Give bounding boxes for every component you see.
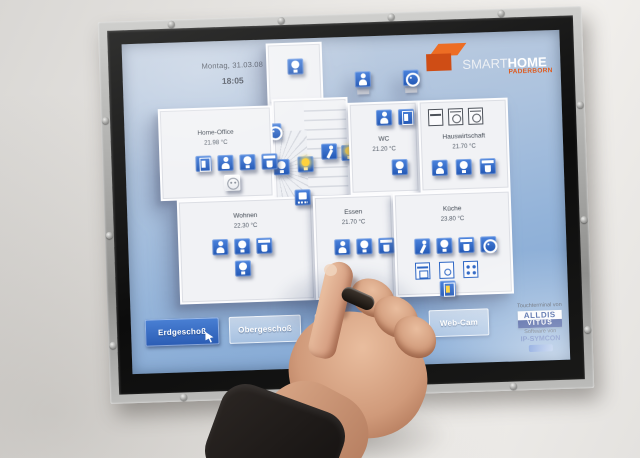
room-essen: Essen 21.70 °C [313,193,396,300]
room-name: Hauswirtschaft [421,132,507,142]
screw-icon [290,390,297,397]
touch-terminal-monitor: Montag, 31.03.08 18:05 SMARTHOME PADERBO… [98,6,594,404]
blinds-icon[interactable] [256,237,273,254]
presence-icon[interactable] [334,239,351,256]
light-icon[interactable] [356,238,373,255]
room-stairwell-top [266,42,324,106]
cursor-pointer-icon [205,331,214,342]
screw-icon [577,101,584,108]
floor-plan: Home-Office 21.98 °C WC 21.20 °C [150,91,519,315]
fridge-icon [428,109,444,126]
credits-block: Touchterminal von ALLDIS VITUS Software … [512,302,568,353]
webcam-button[interactable]: Web-Cam [429,308,490,337]
room-temperature: 21.98 °C [161,138,271,148]
speaker-icon[interactable] [480,236,497,253]
oven-icon [415,262,431,279]
room-name: Home-Office [160,127,270,138]
light-icon[interactable] [234,238,251,255]
motion-icon[interactable] [321,143,338,160]
door-icon[interactable] [398,109,415,126]
screw-icon [581,216,588,223]
motion-icon[interactable] [414,238,431,255]
washing-machine-icon [448,108,464,125]
screw-icon [388,13,395,20]
screw-icon [168,21,175,28]
room-temperature: 22.30 °C [180,221,312,231]
ip-symcon-label: IP-SYMCON [513,335,567,344]
presence-icon[interactable] [217,155,234,172]
floor-button-hidden[interactable] [315,311,408,341]
room-temperature: 21.70 °C [316,218,392,227]
screw-icon [400,386,407,393]
intercom-icon[interactable] [294,189,311,206]
light-on-icon[interactable] [297,156,314,173]
dryer-icon [468,107,484,124]
door-open-icon[interactable] [440,280,457,297]
room-kueche: Küche 23.80 °C [393,190,514,298]
presence-icon[interactable] [376,109,393,126]
logo-cube-icon [426,53,452,71]
room-temperature: 21.70 °C [421,143,507,152]
blinds-icon[interactable] [458,237,475,254]
floor-button-erdgeschoss[interactable]: Erdgeschoß [145,317,220,346]
room-name: Wohnen [179,210,311,221]
light-icon[interactable] [392,159,409,176]
light-icon[interactable] [287,58,304,75]
touchscreen[interactable]: Montag, 31.03.08 18:05 SMARTHOME PADERBO… [122,30,571,374]
room-temperature: 23.80 °C [395,215,509,225]
light-icon[interactable] [239,154,256,171]
presence-icon[interactable] [432,160,449,177]
touchterminal-label: Touchterminal von [512,302,566,310]
blinds-icon[interactable] [378,237,395,254]
door-icon[interactable] [195,155,212,172]
room-temperature: 21.20 °C [351,146,417,154]
screw-icon [278,17,285,24]
screw-icon [102,117,109,124]
cooktop-icon [463,261,479,278]
blinds-icon[interactable] [261,153,278,170]
screw-icon [584,326,591,333]
arm-shadow [250,400,450,458]
socket-icon[interactable] [224,174,241,191]
room-name: Essen [315,208,391,218]
pedestal [357,89,369,94]
screw-icon [180,393,187,400]
light-icon[interactable] [235,260,252,277]
screw-icon [498,10,505,17]
screw-icon [109,342,116,349]
screw-icon [106,232,113,239]
light-icon[interactable] [436,237,453,254]
floor-button-obergeschoss[interactable]: Obergeschoß [229,315,302,344]
presence-icon[interactable] [355,71,372,88]
room-wohnen: Wohnen 22.30 °C [177,196,316,304]
wall-background: Montag, 31.03.08 18:05 SMARTHOME PADERBO… [0,0,640,458]
room-home-office: Home-Office 21.98 °C [158,105,275,201]
ip-symcon-logo [529,344,553,352]
screw-icon [510,382,517,389]
presence-icon[interactable] [212,239,229,256]
light-icon[interactable] [456,159,473,176]
room-wc: WC 21.20 °C [348,101,421,195]
smarthome-logo: SMARTHOME PADERBORN [414,36,556,97]
alldis-vitus-logo: ALLDIS VITUS [518,310,563,328]
pedestal [405,88,417,93]
room-name: Küche [395,204,509,215]
dishwasher-icon [439,261,455,278]
speaker-icon[interactable] [403,70,420,87]
room-hauswirtschaft: Hauswirtschaft 21.70 °C [418,98,511,193]
room-name: WC [351,135,417,144]
blinds-icon[interactable] [480,158,497,175]
